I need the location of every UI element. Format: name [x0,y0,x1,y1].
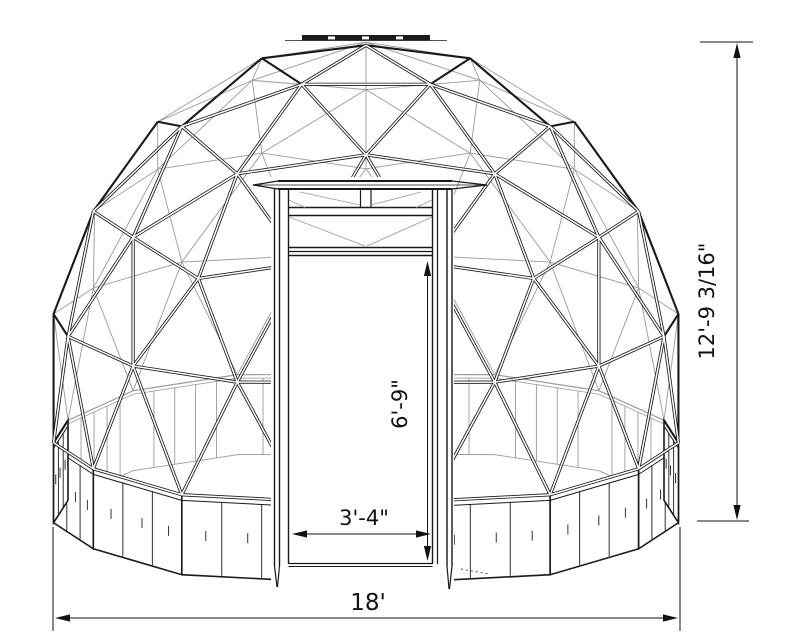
dim-label-door-width: 3'-4" [339,506,389,530]
dim-label-overall-width: 18' [350,590,386,616]
dim-label-overall-height: 12'-9 3/16" [695,243,719,360]
geodesic-dome-drawing: 12'-9 3/16" 18' 3'-4" 6'-9" [0,0,794,641]
drawing-canvas: 12'-9 3/16" 18' 3'-4" 6'-9" [0,0,794,641]
dim-label-door-height: 6'-9" [388,379,412,429]
